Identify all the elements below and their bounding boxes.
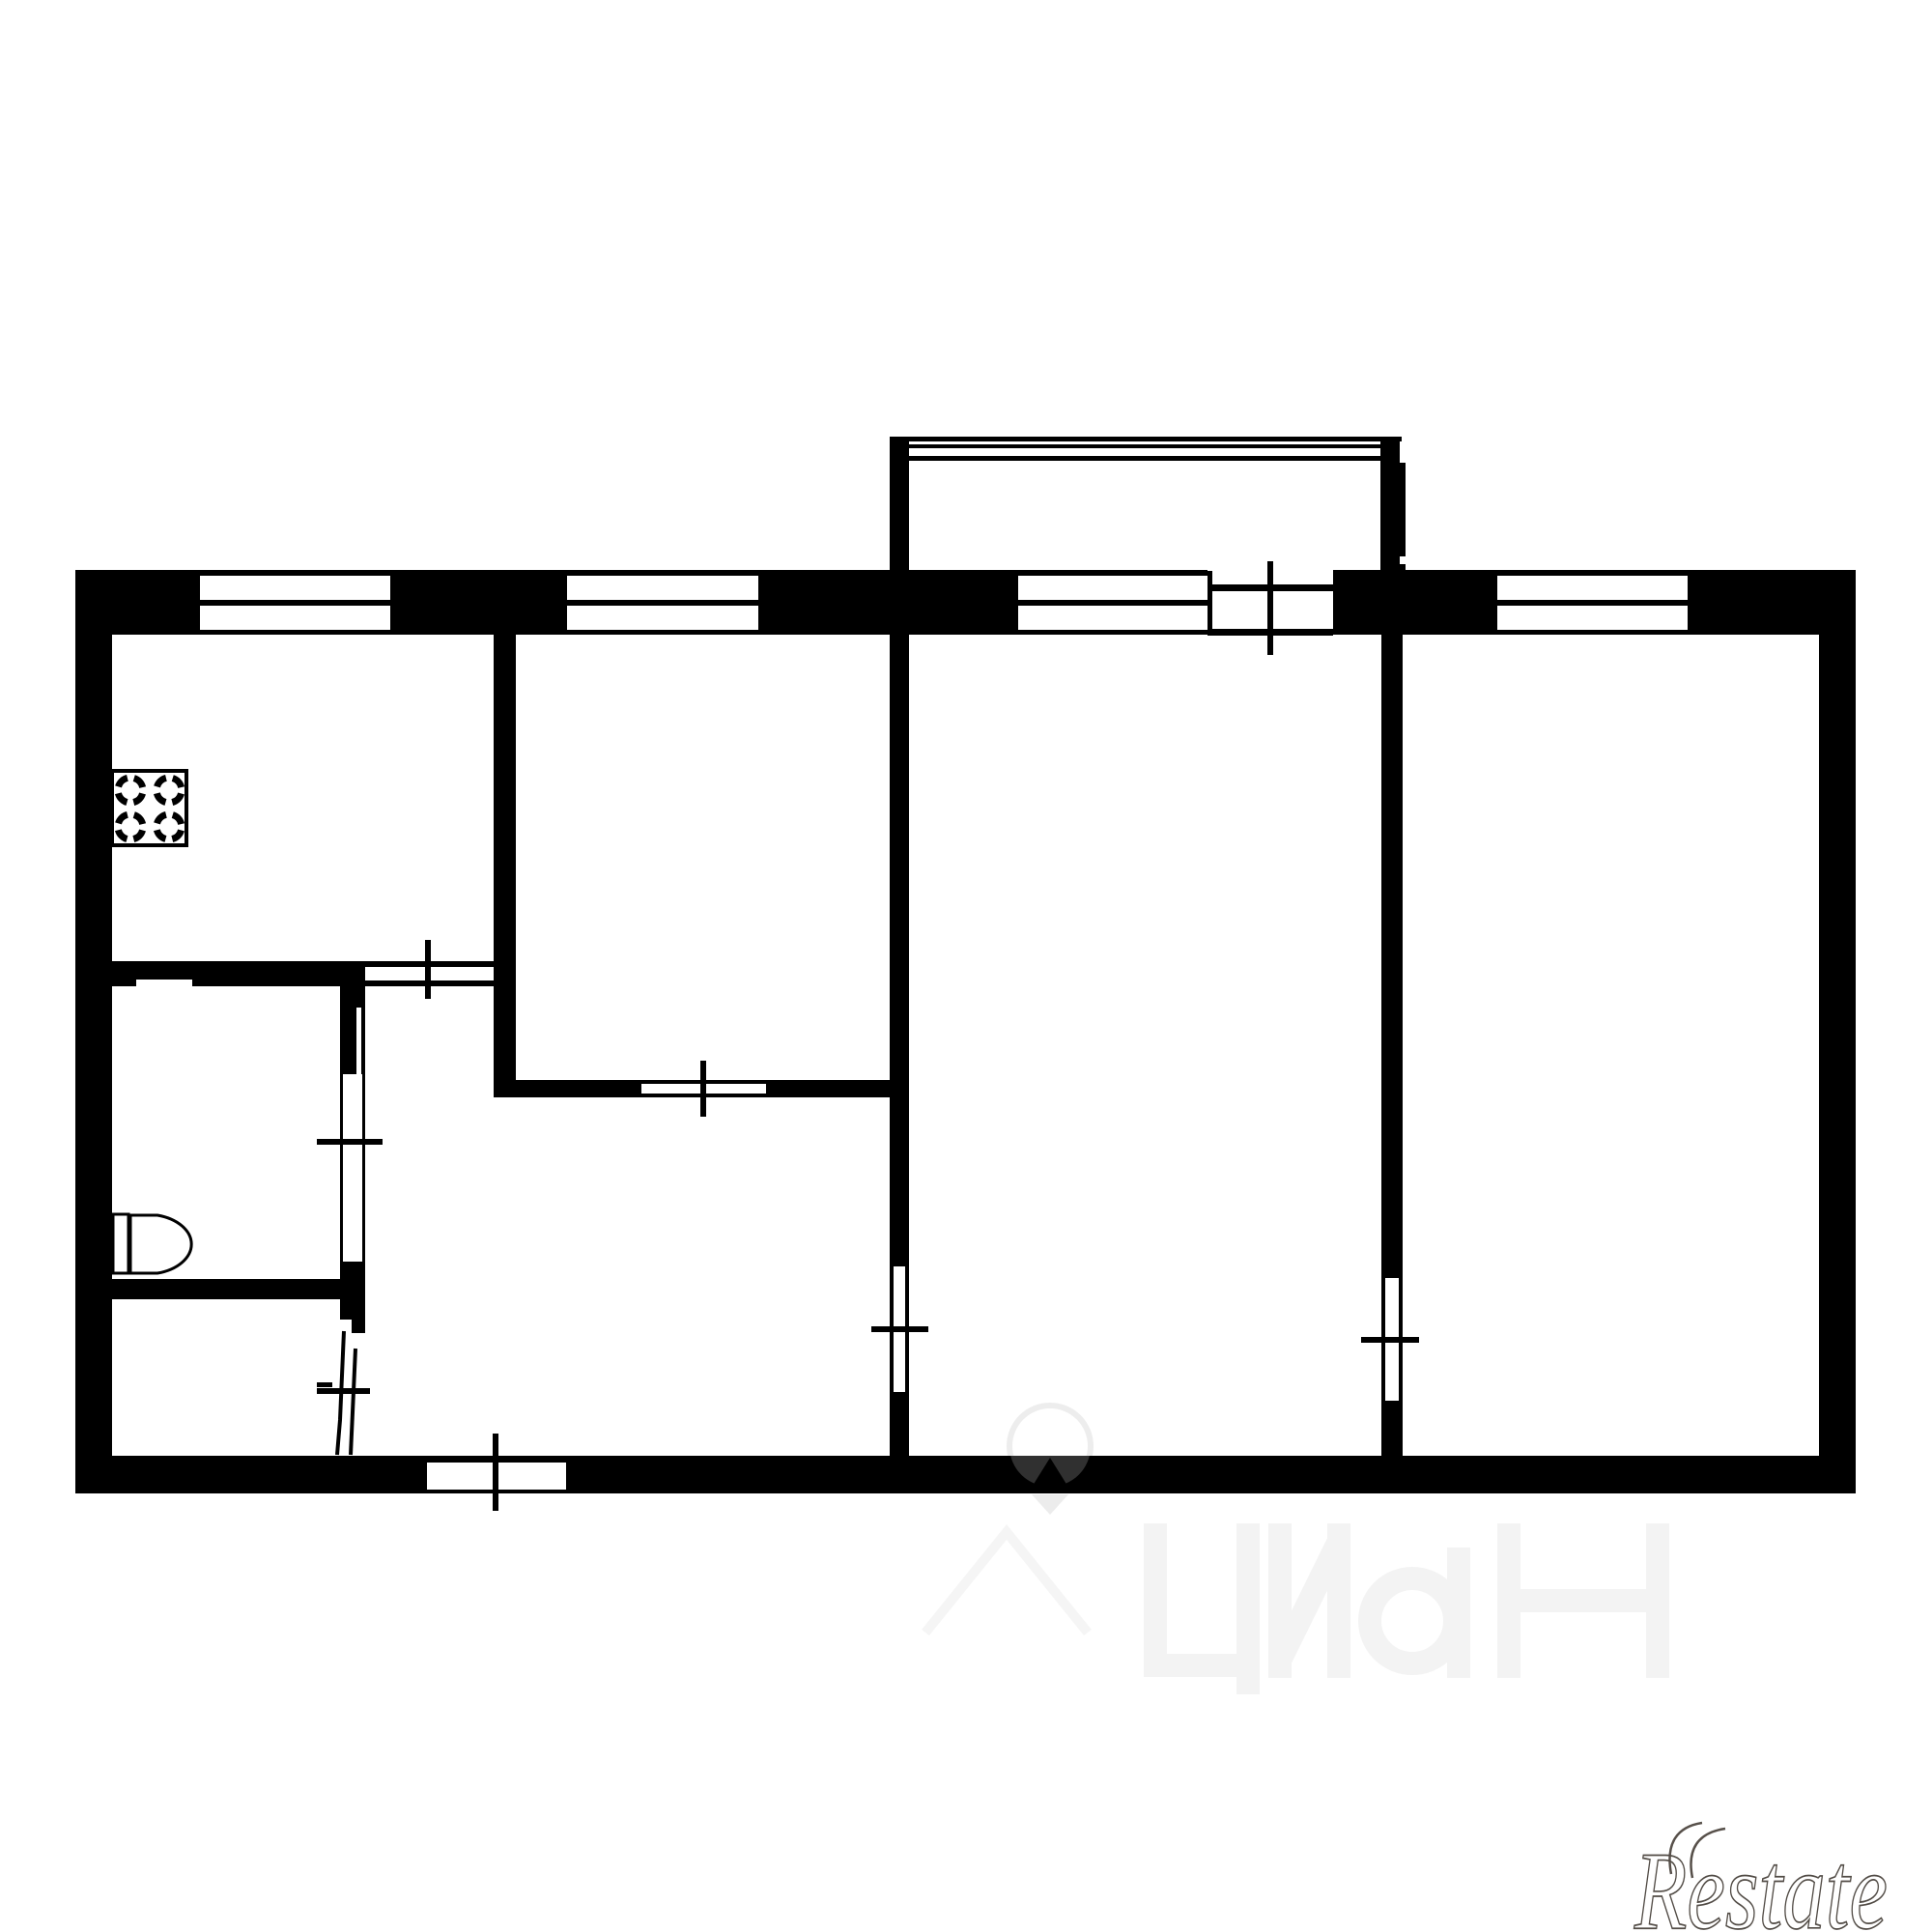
svg-text:Restate: Restate xyxy=(1634,1830,1888,1932)
